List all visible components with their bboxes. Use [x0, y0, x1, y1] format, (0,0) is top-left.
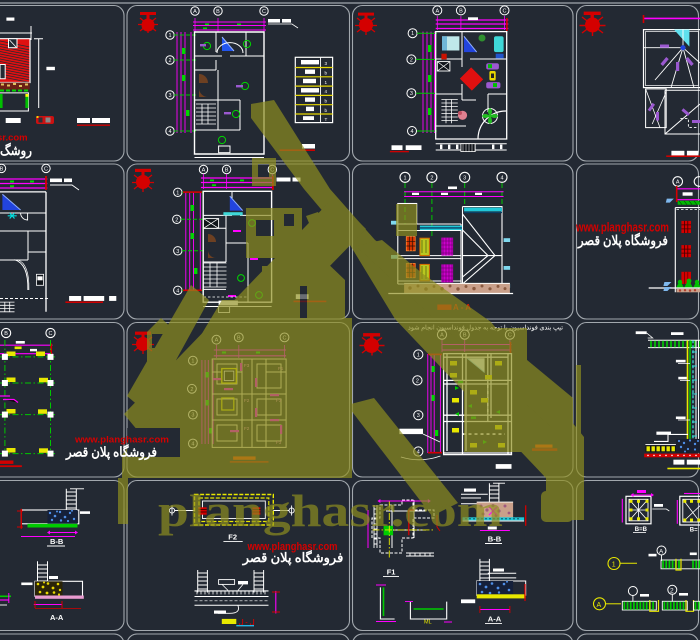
svg-text:C: C: [262, 9, 266, 15]
svg-text:b: b: [325, 108, 328, 113]
svg-text:روشگ: روشگ: [0, 142, 32, 159]
svg-text:B: B: [216, 9, 220, 15]
svg-text:A: A: [193, 9, 197, 15]
svg-text:1: 1: [411, 31, 414, 37]
svg-text:1: 1: [403, 175, 406, 181]
svg-text:B: B: [459, 8, 463, 14]
svg-text:3: 3: [176, 249, 179, 255]
svg-text:A: A: [676, 180, 680, 186]
svg-text:3: 3: [325, 61, 328, 66]
svg-text:b: b: [325, 71, 328, 76]
svg-text:F1: F1: [387, 568, 396, 577]
svg-text:3: 3: [417, 413, 420, 419]
svg-text:3: 3: [410, 91, 413, 97]
svg-text:B: B: [0, 166, 4, 172]
svg-text:C: C: [44, 166, 48, 172]
svg-text:3: 3: [168, 93, 171, 99]
svg-text:1: 1: [612, 562, 616, 569]
svg-text:1: 1: [325, 80, 328, 85]
svg-text:4: 4: [176, 288, 179, 294]
svg-text:A: A: [435, 8, 439, 14]
svg-text:2: 2: [670, 588, 674, 595]
svg-text:b: b: [325, 99, 328, 104]
svg-text:A-A: A-A: [50, 613, 64, 622]
svg-text:2: 2: [168, 58, 171, 64]
svg-text:4: 4: [168, 129, 171, 135]
svg-text:A: A: [659, 548, 664, 555]
svg-text:ML: ML: [424, 620, 432, 626]
svg-text:planghasr.com: planghasr.com: [158, 485, 503, 536]
svg-text:فروشگاه پلان قصر: فروشگاه پلان قصر: [577, 232, 668, 249]
svg-text:4: 4: [500, 175, 503, 181]
svg-text:B-B: B-B: [50, 537, 64, 546]
svg-text:2: 2: [410, 57, 413, 63]
svg-text:2: 2: [416, 378, 419, 384]
svg-text:C: C: [503, 8, 507, 14]
svg-text:A: A: [202, 168, 206, 174]
svg-text:4: 4: [410, 129, 413, 135]
svg-text:B: B: [225, 168, 229, 174]
svg-text:1: 1: [176, 190, 179, 196]
svg-text:B=: B=: [690, 527, 698, 533]
svg-text:sr.com: sr.com: [0, 133, 28, 144]
svg-text:2: 2: [430, 175, 433, 181]
svg-text:C: C: [49, 331, 53, 337]
svg-text:4: 4: [325, 89, 328, 94]
svg-text:A-A: A-A: [488, 615, 502, 624]
svg-text:T: T: [325, 117, 328, 122]
svg-text:2: 2: [175, 217, 178, 223]
svg-text:B: B: [4, 331, 8, 337]
svg-text:A: A: [597, 602, 602, 609]
svg-text:1: 1: [168, 33, 171, 39]
svg-text:فروشگاه پلان قصر: فروشگاه پلان قصر: [65, 444, 157, 461]
svg-text:3: 3: [463, 175, 466, 181]
svg-text:فروشگاه پلان قصر: فروشگاه پلان قصر: [242, 549, 344, 566]
svg-text:1: 1: [417, 353, 420, 359]
